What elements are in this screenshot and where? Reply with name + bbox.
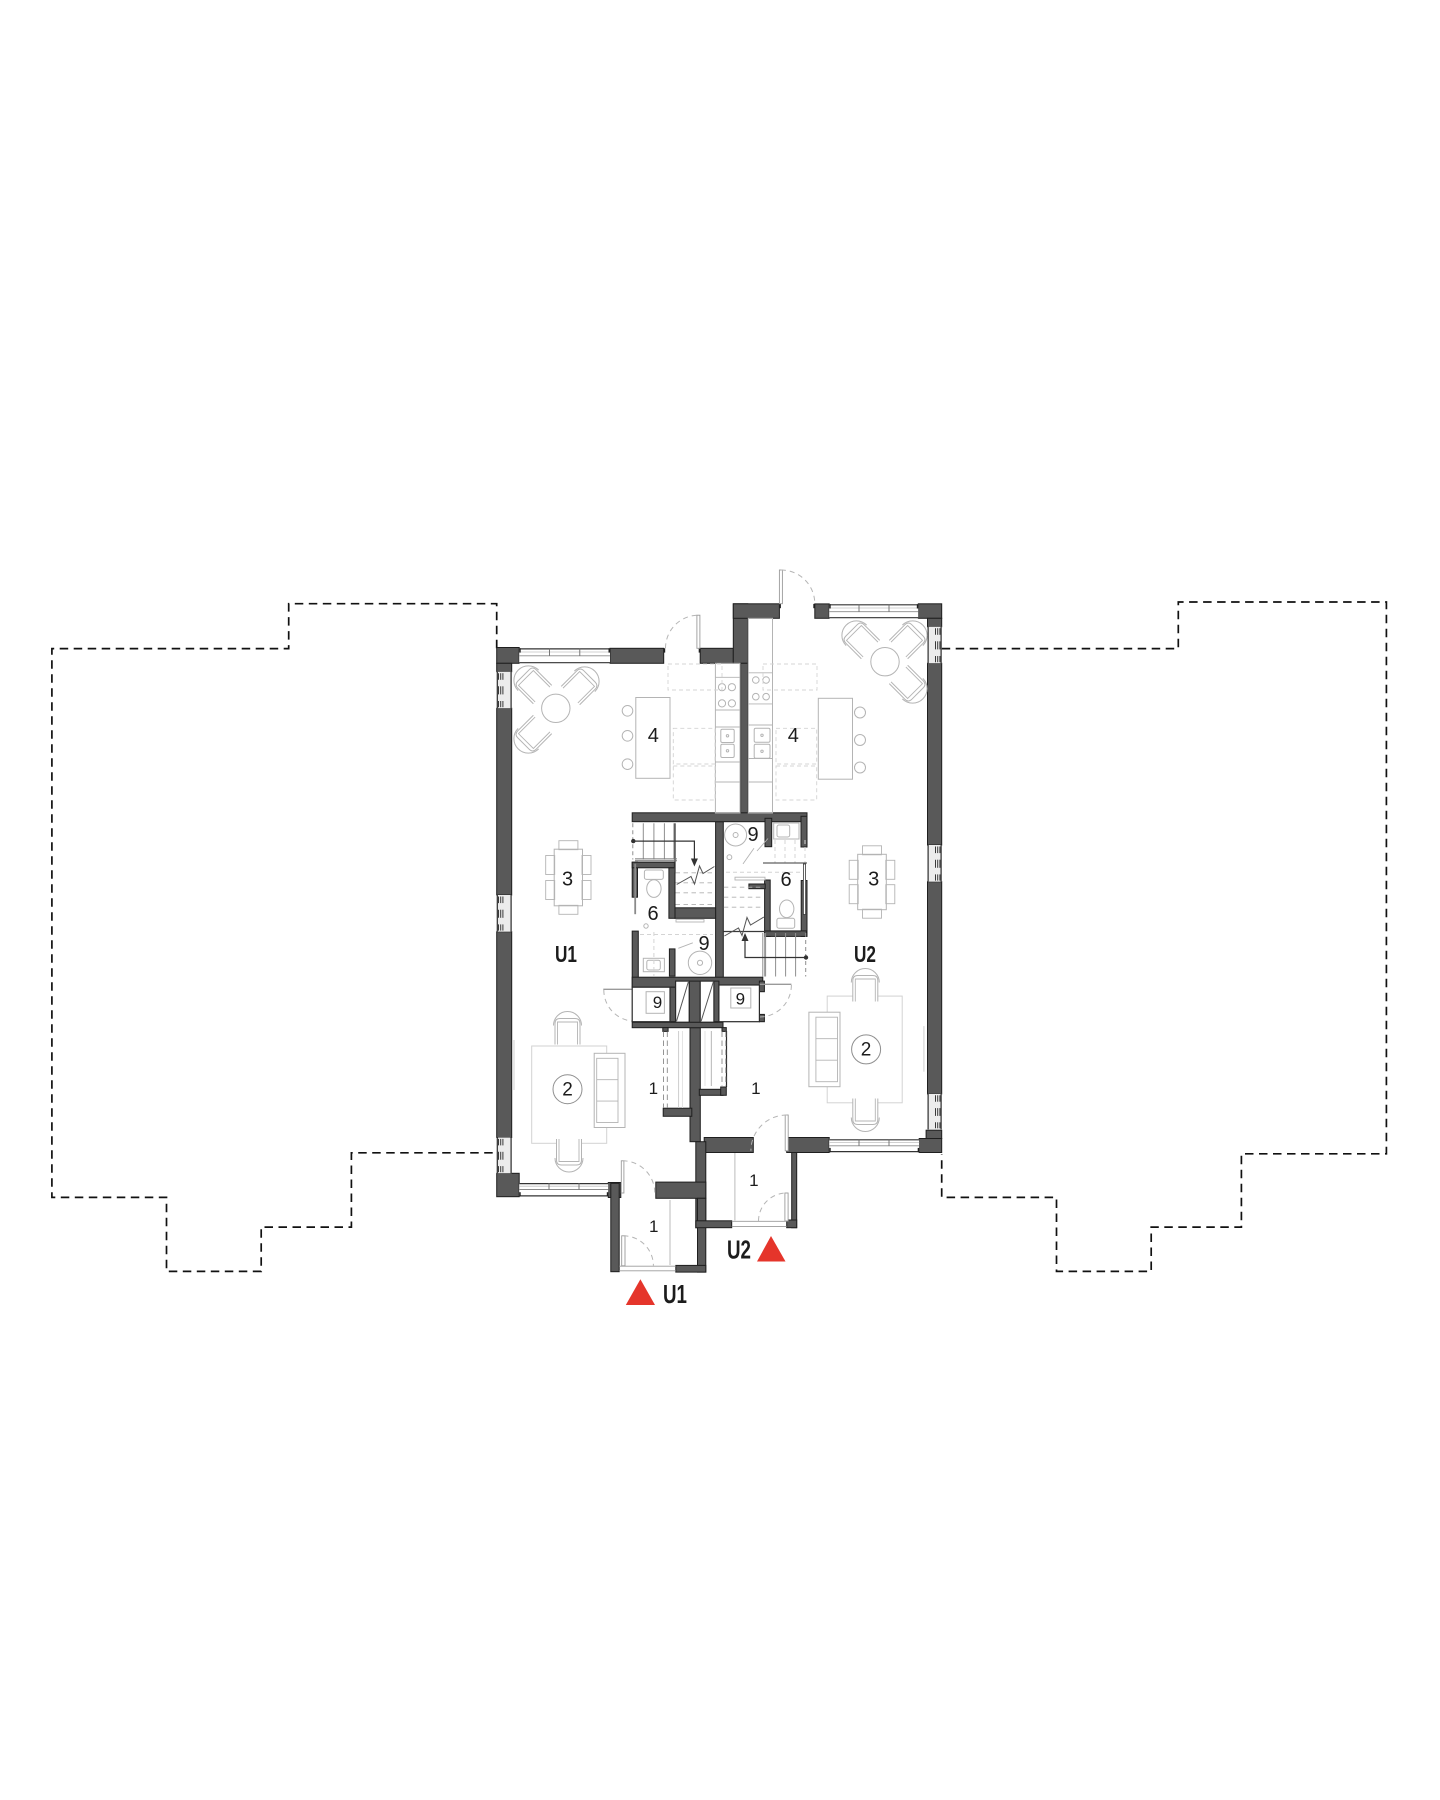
svg-text:9: 9 xyxy=(698,933,709,955)
svg-text:9: 9 xyxy=(747,824,758,846)
svg-text:6: 6 xyxy=(780,869,791,891)
svg-text:3: 3 xyxy=(562,868,573,890)
svg-text:9: 9 xyxy=(653,993,662,1012)
svg-text:6: 6 xyxy=(647,903,658,925)
svg-text:1: 1 xyxy=(649,1079,658,1098)
svg-text:9: 9 xyxy=(736,990,745,1009)
svg-text:1: 1 xyxy=(751,1079,760,1098)
svg-text:4: 4 xyxy=(648,725,659,747)
svg-text:U2: U2 xyxy=(727,1235,751,1265)
svg-text:3: 3 xyxy=(868,868,879,890)
svg-text:2: 2 xyxy=(861,1040,872,1061)
svg-text:2: 2 xyxy=(562,1079,573,1100)
svg-text:U1: U1 xyxy=(663,1279,687,1309)
svg-text:4: 4 xyxy=(788,725,799,747)
svg-text:1: 1 xyxy=(649,1217,658,1236)
svg-text:U1: U1 xyxy=(555,941,577,967)
svg-text:U2: U2 xyxy=(854,941,876,967)
svg-text:1: 1 xyxy=(749,1171,758,1190)
